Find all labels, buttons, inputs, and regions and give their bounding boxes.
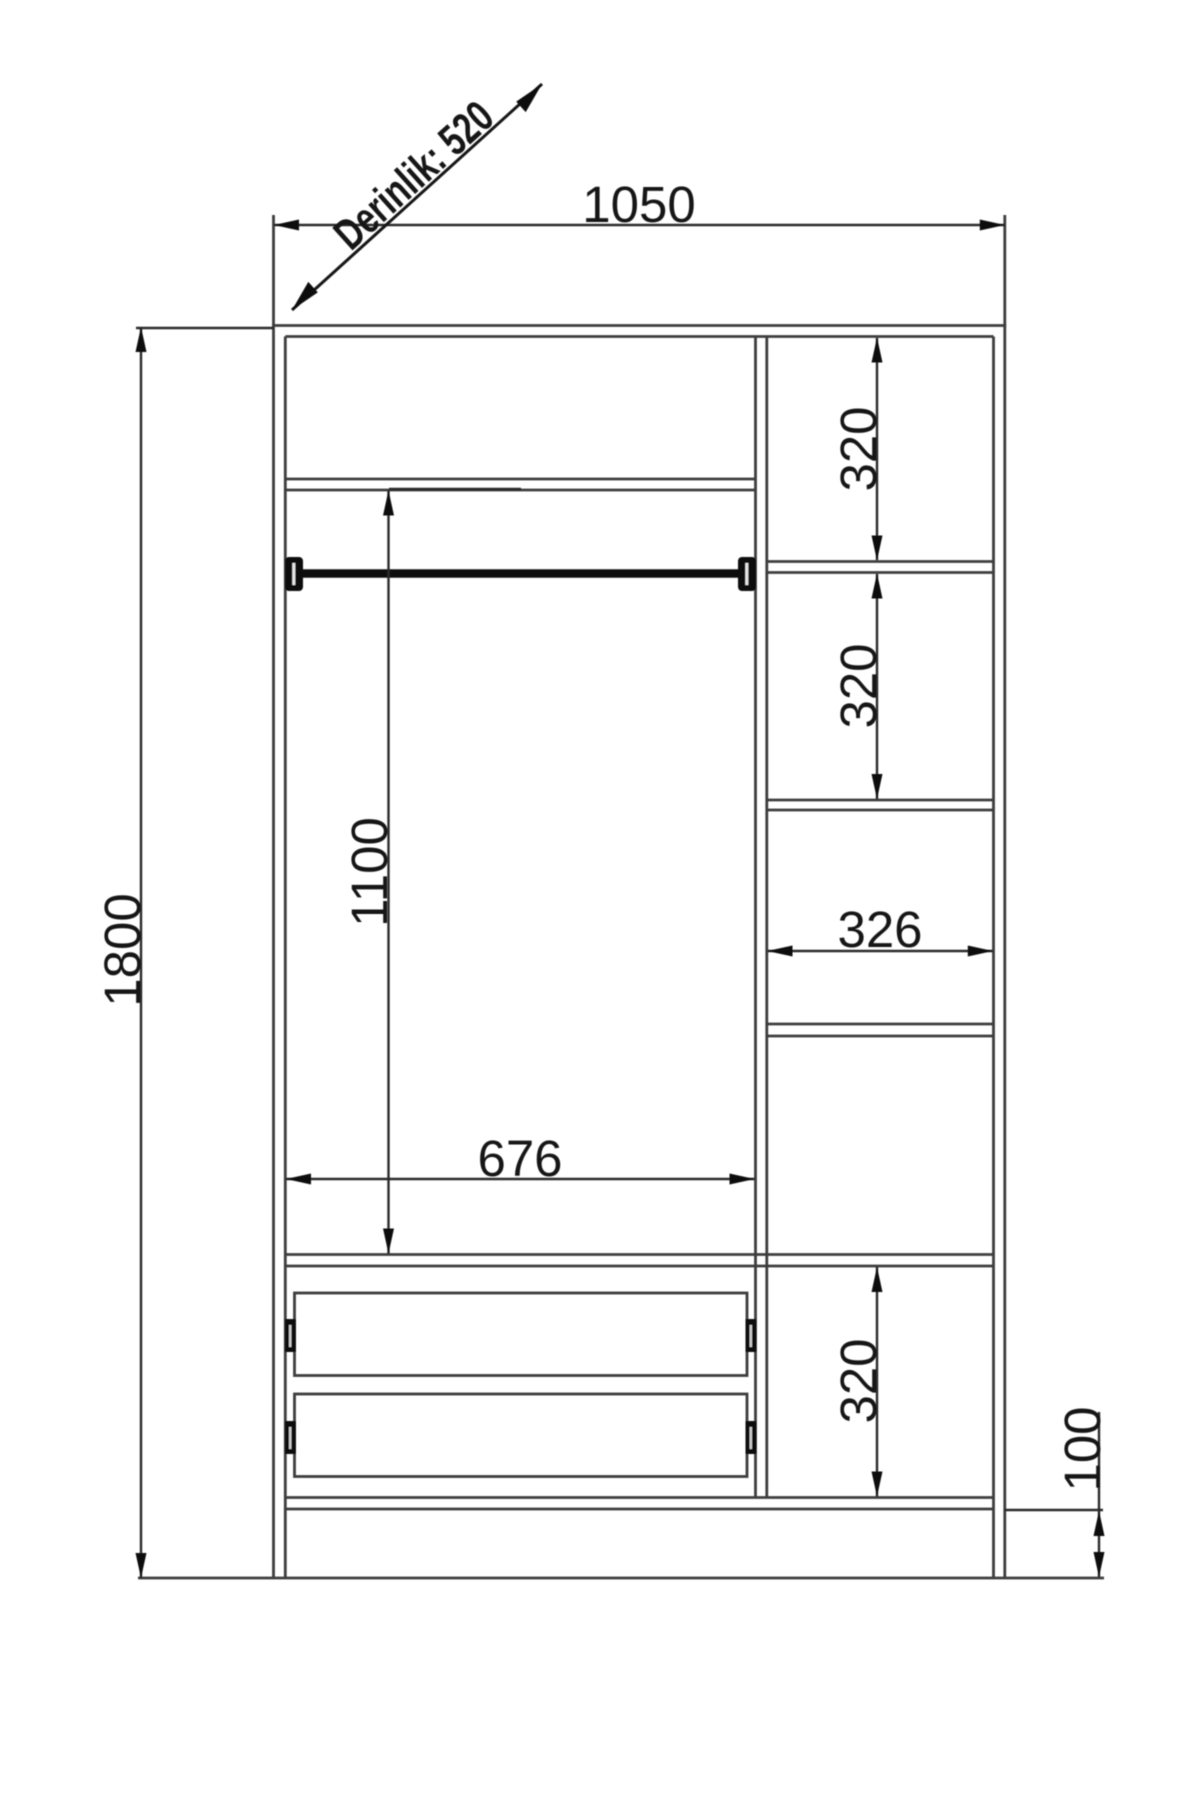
svg-text:1050: 1050 [582,176,695,233]
svg-text:326: 326 [837,901,922,958]
svg-text:1100: 1100 [341,817,398,927]
svg-text:100: 100 [1054,1406,1111,1491]
svg-text:676: 676 [477,1130,562,1187]
svg-text:320: 320 [830,643,887,728]
svg-text:320: 320 [830,1338,887,1423]
svg-text:1800: 1800 [94,893,151,1006]
svg-text:Derinlik: 520: Derinlik: 520 [325,92,503,260]
svg-text:320: 320 [830,406,887,491]
